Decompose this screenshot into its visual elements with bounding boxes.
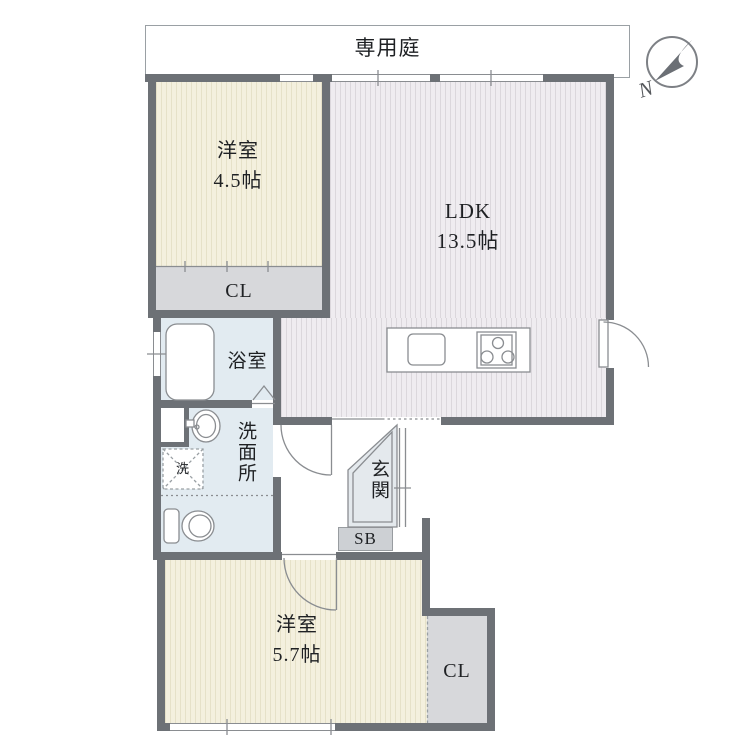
wall-segment [273, 477, 281, 552]
wall-segment [422, 518, 430, 616]
bedroom2-size: 5.7帖 [224, 640, 370, 670]
door-swing-icon [604, 322, 649, 367]
wall-segment [157, 552, 165, 731]
ldk-size: 13.5帖 [398, 226, 538, 256]
bedroom1-size: 4.5帖 [165, 166, 311, 196]
wall-segment [606, 74, 614, 320]
compass-circle [647, 37, 697, 87]
wall-segment [487, 608, 495, 731]
laundry-label: 洗 [169, 460, 197, 478]
wall-segment [273, 318, 281, 425]
closet2-label: CL [427, 656, 487, 684]
bathroom-label: 浴室 [200, 347, 295, 371]
compass-north-label: N [634, 75, 657, 103]
wall-segment [153, 442, 189, 447]
ldk-name: LDK [398, 196, 538, 226]
washroom-niche [161, 408, 184, 442]
ldk-area-lower [281, 318, 606, 417]
compass-needle-icon [655, 40, 692, 81]
wall-segment [148, 74, 156, 318]
washroom-label: 洗面所 [233, 406, 259, 498]
wall-segment [422, 608, 495, 616]
window [280, 74, 313, 82]
bedroom2-name: 洋室 [224, 610, 370, 640]
bedroom1-name: 洋室 [165, 136, 311, 166]
garden-label: 専用庭 [145, 33, 630, 61]
window [332, 74, 430, 82]
window [153, 332, 161, 376]
closet1-label: CL [156, 276, 322, 302]
wall-segment [322, 74, 330, 318]
toilet-area [161, 494, 273, 552]
floor-plan: 専用庭 [0, 0, 750, 750]
front-door-icon [394, 428, 411, 527]
entrance-label: 玄関 [366, 446, 392, 514]
door-swing-icon [281, 425, 332, 475]
shoebox-label: SB [338, 528, 393, 550]
window [440, 74, 543, 82]
wall-segment [441, 417, 614, 425]
door-opening [282, 552, 336, 560]
wall-segment [273, 417, 332, 425]
wall-segment [148, 310, 330, 318]
window [170, 723, 335, 731]
wall-segment [184, 408, 189, 446]
